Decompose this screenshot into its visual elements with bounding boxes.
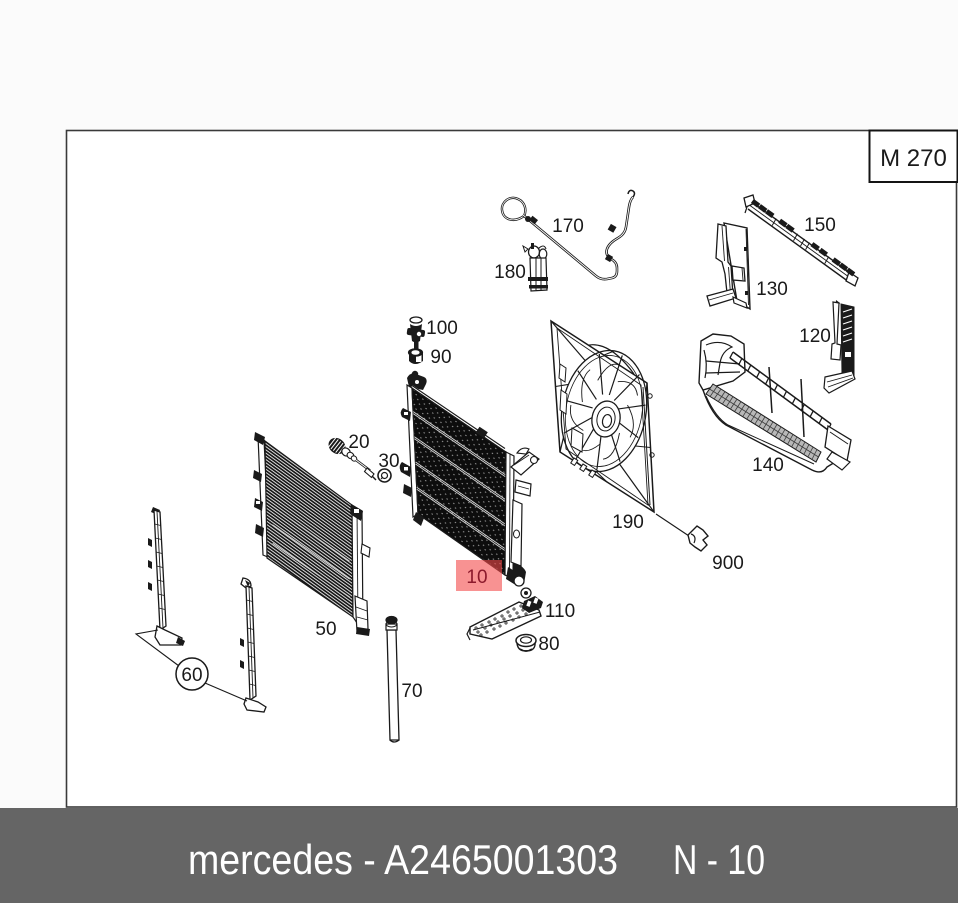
svg-text:20: 20 [348,432,369,453]
svg-text:M 270: M 270 [880,145,947,172]
svg-text:170: 170 [552,216,584,237]
svg-text:50: 50 [315,619,336,640]
svg-text:120: 120 [799,326,831,347]
svg-text:90: 90 [430,347,451,368]
svg-text:100: 100 [426,318,458,339]
svg-text:80: 80 [538,634,559,655]
svg-text:mercedes - A2465001303: mercedes - A2465001303 [188,836,618,883]
svg-text:900: 900 [712,553,744,574]
svg-text:110: 110 [545,601,575,622]
svg-text:180: 180 [494,262,526,283]
svg-text:130: 130 [756,279,788,300]
svg-text:190: 190 [612,512,644,533]
svg-text:N - 10: N - 10 [673,836,765,883]
svg-text:60: 60 [181,665,202,686]
svg-text:140: 140 [752,455,784,476]
svg-text:30: 30 [378,451,399,472]
svg-text:70: 70 [401,681,422,702]
svg-text:10: 10 [466,567,487,588]
svg-text:150: 150 [804,215,836,236]
